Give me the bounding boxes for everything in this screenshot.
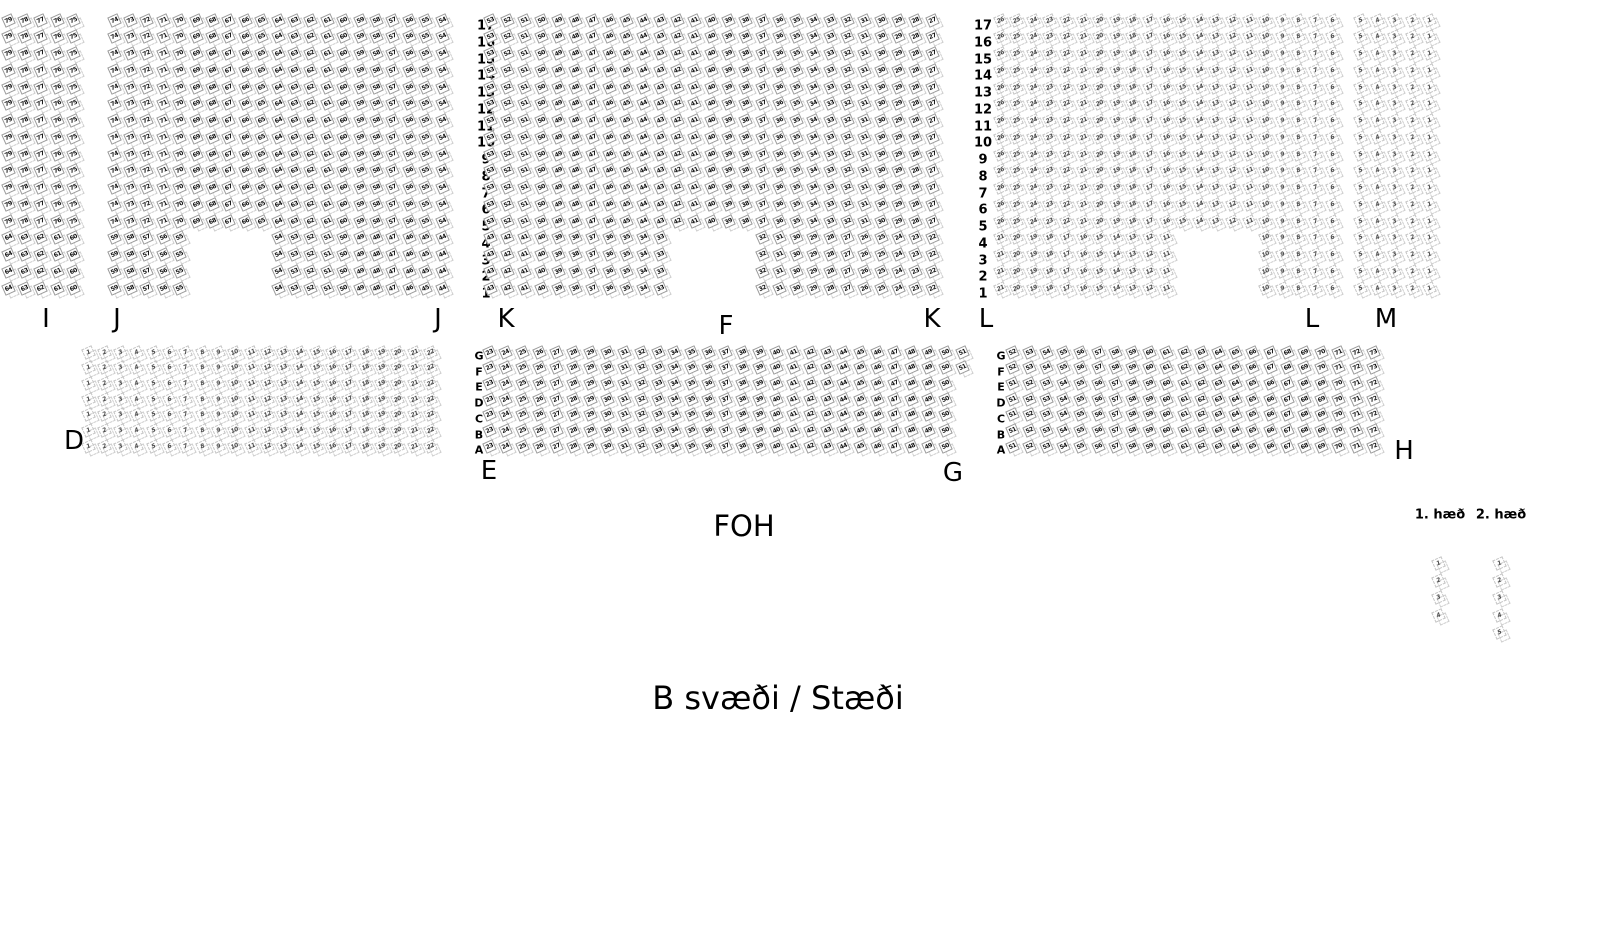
seat[interactable]: 17: [1145, 16, 1158, 29]
seat[interactable]: 12: [1228, 49, 1241, 62]
seat[interactable]: 57: [388, 49, 401, 62]
seat[interactable]: 61: [1180, 379, 1193, 392]
seat[interactable]: 72: [142, 83, 155, 96]
seat[interactable]: 38: [571, 284, 584, 297]
seat[interactable]: 40: [707, 116, 720, 129]
seat[interactable]: 16: [328, 363, 341, 376]
seat[interactable]: 26: [996, 133, 1009, 146]
seat[interactable]: 23: [1045, 183, 1058, 196]
seat[interactable]: 11: [1245, 16, 1258, 29]
seat[interactable]: 61: [323, 32, 336, 45]
seat[interactable]: 55: [421, 200, 434, 213]
seat[interactable]: 73: [1369, 363, 1382, 376]
seat[interactable]: 4: [1373, 133, 1386, 146]
seat[interactable]: 63: [1197, 348, 1210, 361]
seat[interactable]: 1: [1425, 217, 1438, 230]
seat[interactable]: 57: [388, 83, 401, 96]
seat[interactable]: 39: [755, 379, 768, 392]
seat[interactable]: 26: [535, 379, 548, 392]
seat[interactable]: 57: [388, 166, 401, 179]
seat[interactable]: 10: [1261, 133, 1274, 146]
seat[interactable]: 63: [290, 183, 303, 196]
seat[interactable]: 24: [1029, 16, 1042, 29]
seat[interactable]: 6: [1328, 49, 1341, 62]
seat[interactable]: 59: [356, 150, 369, 163]
seat[interactable]: 72: [142, 49, 155, 62]
seat[interactable]: 78: [20, 32, 33, 45]
seat[interactable]: 69: [192, 200, 205, 213]
seat[interactable]: 32: [758, 267, 771, 280]
seat[interactable]: 63: [290, 49, 303, 62]
seat[interactable]: 41: [690, 166, 703, 179]
seat[interactable]: 79: [4, 66, 17, 79]
seat[interactable]: 35: [622, 284, 635, 297]
seat[interactable]: 52: [1025, 410, 1038, 423]
seat[interactable]: 46: [605, 99, 618, 112]
seat[interactable]: 62: [306, 83, 319, 96]
seat[interactable]: 18: [1128, 49, 1141, 62]
seat[interactable]: 33: [826, 217, 839, 230]
seat[interactable]: 17: [1145, 217, 1158, 230]
seat[interactable]: 17: [1145, 200, 1158, 213]
seat[interactable]: 9: [1278, 200, 1291, 213]
seat[interactable]: 43: [656, 200, 669, 213]
seat[interactable]: 66: [1266, 395, 1279, 408]
seat[interactable]: 39: [554, 250, 567, 263]
seat[interactable]: 73: [126, 16, 139, 29]
seat[interactable]: 25: [1012, 83, 1025, 96]
seat[interactable]: 66: [241, 66, 254, 79]
seat[interactable]: 19: [1029, 267, 1042, 280]
seat[interactable]: 58: [372, 116, 385, 129]
seat[interactable]: 56: [405, 16, 418, 29]
seat[interactable]: 42: [673, 200, 686, 213]
seat[interactable]: 32: [843, 133, 856, 146]
seat[interactable]: 4: [1373, 284, 1386, 297]
seat[interactable]: 49: [554, 166, 567, 179]
seat[interactable]: 46: [873, 363, 886, 376]
seat[interactable]: 47: [588, 66, 601, 79]
seat[interactable]: 48: [907, 395, 920, 408]
seat[interactable]: 56: [159, 267, 172, 280]
seat[interactable]: 56: [159, 250, 172, 263]
seat[interactable]: 25: [877, 267, 890, 280]
seat[interactable]: 24: [1029, 116, 1042, 129]
seat[interactable]: 24: [1029, 183, 1042, 196]
seat[interactable]: 12: [263, 348, 276, 361]
seat[interactable]: 33: [826, 16, 839, 29]
seat[interactable]: 68: [1300, 379, 1313, 392]
seat[interactable]: 15: [1178, 116, 1191, 129]
seat[interactable]: 42: [673, 116, 686, 129]
seat[interactable]: 44: [639, 16, 652, 29]
seat[interactable]: 35: [792, 66, 805, 79]
seat[interactable]: 41: [690, 83, 703, 96]
seat[interactable]: 29: [586, 363, 599, 376]
seat[interactable]: 72: [1369, 379, 1382, 392]
seat[interactable]: 46: [605, 133, 618, 146]
seat[interactable]: 17: [344, 395, 357, 408]
seat[interactable]: 52: [503, 217, 516, 230]
seat[interactable]: 51: [520, 116, 533, 129]
seat[interactable]: 45: [421, 233, 434, 246]
seat[interactable]: 58: [372, 99, 385, 112]
seat[interactable]: 51: [1008, 410, 1021, 423]
seat[interactable]: 74: [110, 150, 123, 163]
seat[interactable]: 43: [656, 66, 669, 79]
seat[interactable]: 28: [911, 83, 924, 96]
seat[interactable]: 43: [656, 99, 669, 112]
seat[interactable]: 19: [1029, 250, 1042, 263]
seat[interactable]: 59: [356, 133, 369, 146]
seat[interactable]: 21: [1079, 200, 1092, 213]
seat[interactable]: 65: [257, 32, 270, 45]
seat[interactable]: 10: [1261, 16, 1274, 29]
seat[interactable]: 76: [53, 166, 66, 179]
seat[interactable]: 20: [1095, 133, 1108, 146]
seat[interactable]: 34: [809, 200, 822, 213]
seat[interactable]: 7: [181, 348, 194, 361]
seat[interactable]: 38: [741, 133, 754, 146]
seat[interactable]: 40: [707, 133, 720, 146]
seat[interactable]: 29: [894, 83, 907, 96]
seat[interactable]: 9: [214, 410, 227, 423]
seat[interactable]: 48: [571, 200, 584, 213]
seat[interactable]: 63: [1214, 379, 1227, 392]
seat[interactable]: 9: [214, 379, 227, 392]
seat[interactable]: 58: [1111, 363, 1124, 376]
seat[interactable]: 67: [224, 16, 237, 29]
seat[interactable]: 36: [704, 410, 717, 423]
seat[interactable]: 44: [438, 284, 451, 297]
seat[interactable]: 36: [775, 183, 788, 196]
seat[interactable]: 2: [1408, 150, 1421, 163]
seat[interactable]: 42: [503, 267, 516, 280]
seat[interactable]: 10: [1261, 99, 1274, 112]
seat[interactable]: 13: [279, 379, 292, 392]
seat[interactable]: 28: [911, 99, 924, 112]
seat[interactable]: 79: [4, 116, 17, 129]
seat[interactable]: 33: [654, 395, 667, 408]
seat[interactable]: 62: [306, 32, 319, 45]
seat[interactable]: 45: [622, 150, 635, 163]
seat[interactable]: 69: [192, 66, 205, 79]
seat[interactable]: 26: [996, 183, 1009, 196]
seat[interactable]: 36: [775, 49, 788, 62]
seat[interactable]: 5: [1356, 233, 1369, 246]
seat[interactable]: 49: [554, 116, 567, 129]
seat[interactable]: 23: [1045, 217, 1058, 230]
seat[interactable]: 52: [503, 183, 516, 196]
seat[interactable]: 40: [707, 32, 720, 45]
seat[interactable]: 57: [388, 99, 401, 112]
seat[interactable]: 65: [1248, 410, 1261, 423]
seat[interactable]: 5: [149, 363, 162, 376]
seat[interactable]: 30: [877, 183, 890, 196]
seat[interactable]: 4: [132, 395, 145, 408]
seat[interactable]: 67: [224, 83, 237, 96]
seat[interactable]: 75: [69, 183, 82, 196]
seat[interactable]: 59: [356, 32, 369, 45]
seat[interactable]: 30: [877, 116, 890, 129]
seat[interactable]: 66: [241, 16, 254, 29]
seat[interactable]: 48: [372, 250, 385, 263]
seat[interactable]: 77: [36, 49, 49, 62]
seat[interactable]: 11: [1245, 99, 1258, 112]
seat[interactable]: 20: [1095, 116, 1108, 129]
seat[interactable]: 22: [426, 363, 439, 376]
seat[interactable]: 6: [165, 410, 178, 423]
seat[interactable]: 31: [860, 166, 873, 179]
seat[interactable]: 45: [856, 363, 869, 376]
seat[interactable]: 33: [826, 49, 839, 62]
seat[interactable]: 49: [554, 16, 567, 29]
seat[interactable]: 53: [1042, 379, 1055, 392]
seat[interactable]: 63: [290, 66, 303, 79]
seat[interactable]: 1: [1425, 83, 1438, 96]
seat[interactable]: 41: [789, 379, 802, 392]
seat[interactable]: 60: [339, 32, 352, 45]
seat[interactable]: 31: [620, 410, 633, 423]
seat[interactable]: 17: [344, 348, 357, 361]
seat[interactable]: 20: [1095, 66, 1108, 79]
seat[interactable]: 56: [405, 83, 418, 96]
seat[interactable]: 21: [1079, 150, 1092, 163]
seat[interactable]: 14: [1112, 250, 1125, 263]
seat[interactable]: 1: [1425, 66, 1438, 79]
seat[interactable]: 16: [1162, 49, 1175, 62]
seat[interactable]: 8: [198, 410, 211, 423]
seat[interactable]: 36: [775, 99, 788, 112]
seat[interactable]: 45: [622, 32, 635, 45]
seat[interactable]: 25: [877, 284, 890, 297]
seat[interactable]: 51: [1008, 379, 1021, 392]
seat[interactable]: 78: [20, 83, 33, 96]
seat[interactable]: 25: [1012, 200, 1025, 213]
seat[interactable]: 57: [388, 16, 401, 29]
seat[interactable]: 14: [1112, 284, 1125, 297]
seat[interactable]: 39: [554, 267, 567, 280]
seat[interactable]: 39: [724, 32, 737, 45]
seat[interactable]: 55: [175, 233, 188, 246]
seat[interactable]: 29: [894, 66, 907, 79]
seat[interactable]: 76: [53, 133, 66, 146]
seat[interactable]: 49: [924, 379, 937, 392]
seat[interactable]: 3: [1390, 200, 1403, 213]
seat[interactable]: 72: [142, 217, 155, 230]
seat[interactable]: 29: [809, 233, 822, 246]
seat[interactable]: 44: [639, 99, 652, 112]
seat[interactable]: 29: [894, 32, 907, 45]
seat[interactable]: 52: [503, 66, 516, 79]
seat[interactable]: 51: [520, 83, 533, 96]
seat[interactable]: 6: [1328, 267, 1341, 280]
seat[interactable]: 9: [1278, 267, 1291, 280]
seat[interactable]: 49: [356, 250, 369, 263]
seat[interactable]: 16: [1162, 83, 1175, 96]
seat[interactable]: 35: [792, 116, 805, 129]
seat[interactable]: 59: [110, 250, 123, 263]
seat[interactable]: 26: [535, 363, 548, 376]
seat[interactable]: 79: [4, 200, 17, 213]
seat[interactable]: 2: [1408, 217, 1421, 230]
seat[interactable]: 24: [1029, 49, 1042, 62]
seat[interactable]: 11: [1245, 133, 1258, 146]
seat[interactable]: 21: [410, 395, 423, 408]
seat[interactable]: 53: [290, 233, 303, 246]
seat[interactable]: 35: [687, 348, 700, 361]
seat[interactable]: 36: [775, 66, 788, 79]
seat[interactable]: 19: [1112, 166, 1125, 179]
seat[interactable]: 41: [690, 49, 703, 62]
seat[interactable]: 15: [1178, 66, 1191, 79]
seat[interactable]: 72: [1352, 363, 1365, 376]
seat[interactable]: 69: [1317, 395, 1330, 408]
seat[interactable]: 56: [159, 233, 172, 246]
seat[interactable]: 19: [1112, 49, 1125, 62]
seat[interactable]: 11: [1245, 200, 1258, 213]
seat[interactable]: 68: [1283, 348, 1296, 361]
seat[interactable]: 52: [1025, 395, 1038, 408]
seat[interactable]: 66: [241, 49, 254, 62]
seat[interactable]: 52: [503, 32, 516, 45]
seat[interactable]: 63: [290, 166, 303, 179]
seat[interactable]: 22: [1062, 150, 1075, 163]
seat[interactable]: 9: [1278, 116, 1291, 129]
seat[interactable]: 39: [554, 284, 567, 297]
seat[interactable]: 7: [1311, 116, 1324, 129]
seat[interactable]: 23: [911, 267, 924, 280]
seat[interactable]: 37: [721, 348, 734, 361]
seat[interactable]: 1: [1425, 183, 1438, 196]
seat[interactable]: 4: [132, 426, 145, 439]
seat[interactable]: 17: [1145, 133, 1158, 146]
seat[interactable]: 69: [192, 99, 205, 112]
seat[interactable]: 74: [110, 116, 123, 129]
seat[interactable]: 10: [1261, 116, 1274, 129]
seat[interactable]: 3: [116, 363, 129, 376]
seat[interactable]: 46: [873, 348, 886, 361]
seat[interactable]: 54: [1059, 379, 1072, 392]
seat[interactable]: 37: [758, 49, 771, 62]
seat[interactable]: 61: [323, 133, 336, 146]
seat[interactable]: 67: [224, 32, 237, 45]
seat[interactable]: 56: [405, 217, 418, 230]
seat[interactable]: 46: [605, 16, 618, 29]
seat[interactable]: 52: [1008, 363, 1021, 376]
seat[interactable]: 40: [707, 166, 720, 179]
seat[interactable]: 18: [1045, 267, 1058, 280]
seat[interactable]: 47: [588, 99, 601, 112]
seat[interactable]: 48: [372, 267, 385, 280]
seat[interactable]: 39: [724, 49, 737, 62]
seat[interactable]: 10: [1261, 150, 1274, 163]
seat[interactable]: 14: [1112, 233, 1125, 246]
seat[interactable]: 57: [1111, 410, 1124, 423]
seat[interactable]: 64: [274, 66, 287, 79]
seat[interactable]: 15: [1178, 32, 1191, 45]
seat[interactable]: 2: [1408, 183, 1421, 196]
seat[interactable]: 28: [569, 379, 582, 392]
seat[interactable]: 47: [388, 267, 401, 280]
seat[interactable]: 37: [758, 133, 771, 146]
seat[interactable]: 38: [741, 166, 754, 179]
seat[interactable]: 69: [1317, 410, 1330, 423]
seat[interactable]: 11: [247, 363, 260, 376]
seat[interactable]: 47: [588, 116, 601, 129]
seat[interactable]: 14: [1195, 217, 1208, 230]
seat[interactable]: 40: [707, 83, 720, 96]
seat[interactable]: 31: [860, 32, 873, 45]
seat[interactable]: 19: [1112, 66, 1125, 79]
seat[interactable]: 33: [654, 363, 667, 376]
seat[interactable]: 58: [126, 267, 139, 280]
seat[interactable]: 71: [159, 83, 172, 96]
seat[interactable]: 79: [4, 83, 17, 96]
seat[interactable]: 59: [356, 49, 369, 62]
seat[interactable]: 77: [36, 133, 49, 146]
seat[interactable]: 55: [421, 183, 434, 196]
seat[interactable]: 7: [1311, 66, 1324, 79]
seat[interactable]: 12: [1228, 150, 1241, 163]
seat[interactable]: 52: [503, 99, 516, 112]
seat[interactable]: 52: [306, 250, 319, 263]
seat[interactable]: 23: [1045, 49, 1058, 62]
seat[interactable]: 5: [1356, 66, 1369, 79]
seat[interactable]: 60: [339, 150, 352, 163]
seat[interactable]: 41: [520, 250, 533, 263]
seat[interactable]: 53: [486, 183, 499, 196]
seat[interactable]: 31: [775, 267, 788, 280]
seat[interactable]: 59: [1128, 348, 1141, 361]
seat[interactable]: 68: [208, 116, 221, 129]
seat[interactable]: 11: [1245, 32, 1258, 45]
seat[interactable]: 29: [894, 183, 907, 196]
seat[interactable]: 71: [159, 32, 172, 45]
seat[interactable]: 40: [707, 183, 720, 196]
seat[interactable]: 54: [438, 66, 451, 79]
seat[interactable]: 43: [823, 348, 836, 361]
seat[interactable]: 40: [707, 66, 720, 79]
seat[interactable]: 60: [69, 284, 82, 297]
seat[interactable]: 3: [1390, 49, 1403, 62]
seat[interactable]: 46: [605, 66, 618, 79]
seat[interactable]: 48: [571, 83, 584, 96]
seat[interactable]: 38: [571, 233, 584, 246]
seat[interactable]: 19: [377, 348, 390, 361]
seat[interactable]: 25: [1012, 66, 1025, 79]
seat[interactable]: 6: [1328, 217, 1341, 230]
seat[interactable]: 26: [860, 284, 873, 297]
seat[interactable]: 64: [274, 83, 287, 96]
seat[interactable]: 21: [1079, 99, 1092, 112]
seat[interactable]: 15: [312, 395, 325, 408]
seat[interactable]: 33: [826, 99, 839, 112]
seat[interactable]: 2: [1408, 267, 1421, 280]
seat[interactable]: 55: [175, 284, 188, 297]
seat[interactable]: 12: [1228, 16, 1241, 29]
seat[interactable]: 17: [344, 410, 357, 423]
seat[interactable]: 26: [996, 99, 1009, 112]
seat[interactable]: 18: [1128, 16, 1141, 29]
seat[interactable]: 3: [1390, 99, 1403, 112]
seat[interactable]: 60: [339, 16, 352, 29]
seat[interactable]: 50: [537, 66, 550, 79]
seat[interactable]: 23: [1045, 133, 1058, 146]
seat[interactable]: 62: [36, 233, 49, 246]
seat[interactable]: 15: [1178, 217, 1191, 230]
seat[interactable]: 10: [1261, 66, 1274, 79]
